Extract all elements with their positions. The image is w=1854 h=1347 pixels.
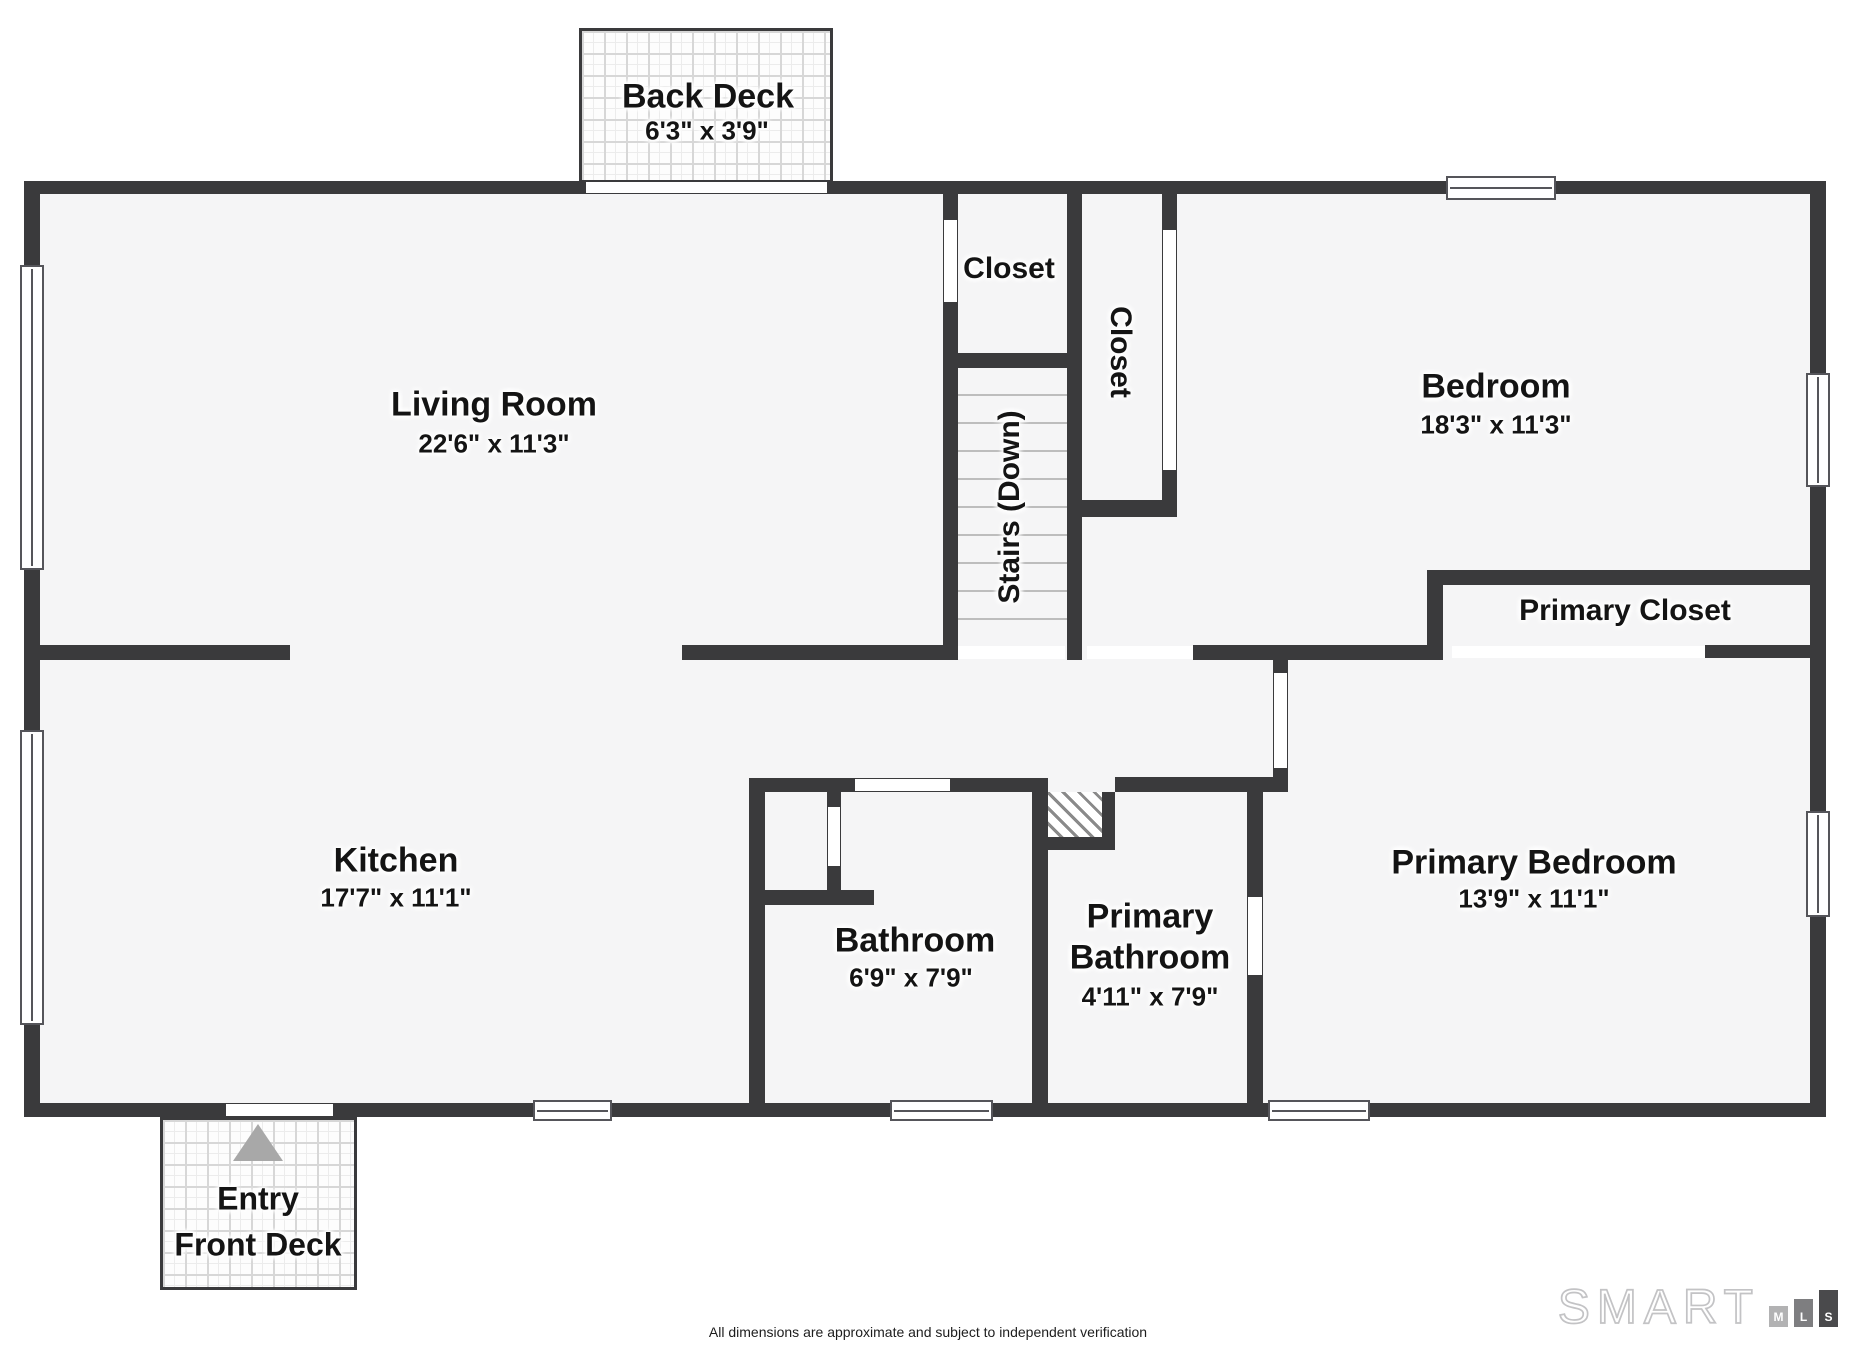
logo-bar-m-letter: M (1774, 1311, 1784, 1323)
door-opening (226, 1104, 333, 1116)
door-opening (586, 182, 827, 193)
room-label-bedroom-closet: Closet (1103, 306, 1137, 398)
window (890, 1100, 993, 1121)
room-label-stairs: Stairs (Down) (993, 410, 1027, 603)
door-opening (944, 220, 957, 302)
logo-bar-s-letter: S (1824, 1311, 1832, 1323)
room-label-back-deck: Back Deck (622, 78, 794, 117)
disclaimer-text: All dimensions are approximate and subje… (709, 1324, 1147, 1340)
door-opening (1087, 646, 1193, 659)
door-opening (958, 646, 1065, 659)
wall (1067, 194, 1082, 660)
logo-wordmark: SMART (1558, 1289, 1760, 1327)
wall (1810, 181, 1826, 1117)
window (1806, 373, 1830, 487)
window (1446, 176, 1556, 200)
wall (1032, 778, 1048, 1103)
mls-bars-icon: M L S (1769, 1290, 1838, 1327)
logo-bar-m: M (1769, 1306, 1788, 1327)
room-dims-bathroom: 6'9" x 7'9" (849, 963, 973, 994)
wall (1705, 645, 1810, 658)
room-label-front-deck: Front Deck (174, 1227, 341, 1264)
logo-bar-l-letter: L (1800, 1311, 1807, 1323)
room-label-primary-bedroom: Primary Bedroom (1391, 844, 1676, 883)
room-label-kitchen: Kitchen (334, 842, 459, 881)
room-label-primary-bathroom-1: Primary (1087, 898, 1214, 937)
room-dims-primary-bathroom: 4'11" x 7'9" (1082, 982, 1219, 1013)
wall (1193, 645, 1443, 660)
window (533, 1100, 612, 1121)
logo-bar-s: S (1819, 1290, 1838, 1327)
wall (749, 890, 874, 905)
wall (682, 645, 950, 660)
window (1806, 811, 1830, 917)
room-label-primary-closet: Primary Closet (1519, 594, 1731, 628)
room-label-living-room: Living Room (391, 386, 597, 425)
floor-plan: Back Deck 6'3" x 3'9" Living Room 22'6" … (0, 0, 1854, 1347)
room-label-bathroom: Bathroom (835, 922, 996, 961)
room-dims-back-deck: 6'3" x 3'9" (645, 116, 769, 147)
door-opening (1248, 897, 1262, 975)
wall (749, 778, 765, 1103)
room-dims-bedroom: 18'3" x 11'3" (1420, 410, 1571, 441)
logo-bar-l: L (1794, 1299, 1813, 1327)
door-opening (855, 779, 950, 791)
window (20, 265, 44, 570)
room-label-entry: Entry (217, 1181, 299, 1218)
room-dims-living-room: 22'6" x 11'3" (418, 429, 569, 460)
wall (1082, 500, 1177, 517)
wall (30, 645, 290, 660)
window (20, 730, 44, 1025)
room-label-closet: Closet (963, 252, 1055, 286)
room-label-primary-bathroom-2: Bathroom (1070, 939, 1231, 978)
entry-arrow-icon (233, 1124, 283, 1161)
room-dims-primary-bedroom: 13'9" x 11'1" (1458, 884, 1609, 915)
room-label-bedroom: Bedroom (1421, 368, 1570, 407)
chimney-hatch (1048, 792, 1102, 837)
door-opening (1163, 230, 1176, 470)
door-opening (1274, 673, 1287, 768)
wall (1427, 570, 1443, 660)
wall (958, 353, 1067, 368)
window (1268, 1100, 1370, 1121)
smartmls-logo: SMART M L S (1558, 1289, 1838, 1327)
door-opening (1452, 646, 1705, 658)
wall (1427, 570, 1810, 585)
wall (1048, 837, 1115, 850)
room-dims-kitchen: 17'7" x 11'1" (320, 883, 471, 914)
door-opening (828, 807, 840, 866)
